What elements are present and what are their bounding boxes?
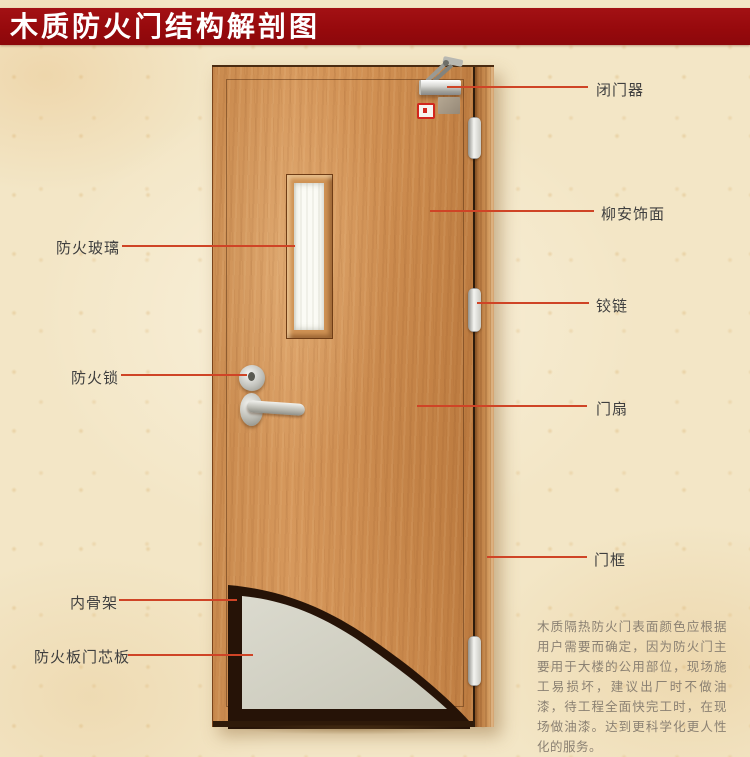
callout-label-fire-glass: 防火玻璃 — [56, 237, 120, 258]
closer-mount-plate — [438, 97, 460, 114]
door-frame-strip — [473, 67, 494, 727]
page: 木质防火门结构解剖图 — [0, 0, 750, 757]
callout-label-door-frame: 门框 — [594, 549, 626, 570]
hinge-top — [468, 117, 481, 159]
callout-label-door-closer: 闭门器 — [596, 79, 644, 100]
callout-line-fire-lock — [121, 374, 247, 376]
hinge-bottom — [468, 636, 481, 686]
callout-line-door-closer — [447, 86, 588, 88]
callout-line-hinge — [477, 302, 589, 304]
door-shadow — [200, 725, 510, 739]
callout-line-door-frame — [487, 556, 587, 558]
fire-door-illustration — [212, 65, 494, 727]
fire-glass-window — [286, 174, 333, 339]
callout-line-fire-glass — [122, 245, 295, 247]
title-banner: 木质防火门结构解剖图 — [0, 8, 750, 45]
door-leaf — [212, 67, 473, 727]
hinge-middle — [468, 288, 481, 332]
callout-label-inner-skeleton: 内骨架 — [70, 592, 118, 613]
product-description: 木质隔热防火门表面颜色应根据用户需要而确定，因为防火门主要用于大楼的公用部位，现… — [537, 617, 727, 757]
fire-label-tag — [417, 103, 435, 119]
callout-line-door-leaf — [417, 405, 587, 407]
callout-label-veneer: 柳安饰面 — [601, 203, 665, 224]
fire-core-board — [242, 596, 447, 709]
callout-label-hinge: 铰链 — [596, 295, 628, 316]
callout-line-veneer — [430, 210, 594, 212]
glass-pane — [294, 183, 324, 330]
lock-cylinder — [239, 365, 265, 391]
callout-label-core-board: 防火板门芯板 — [34, 646, 130, 667]
callout-line-core-board — [128, 654, 253, 656]
callout-line-inner-skeleton — [119, 599, 237, 601]
callout-label-fire-lock: 防火锁 — [71, 367, 119, 388]
page-title: 木质防火门结构解剖图 — [0, 8, 750, 45]
callout-label-door-leaf: 门扇 — [596, 398, 628, 419]
cutaway-section — [213, 572, 474, 729]
